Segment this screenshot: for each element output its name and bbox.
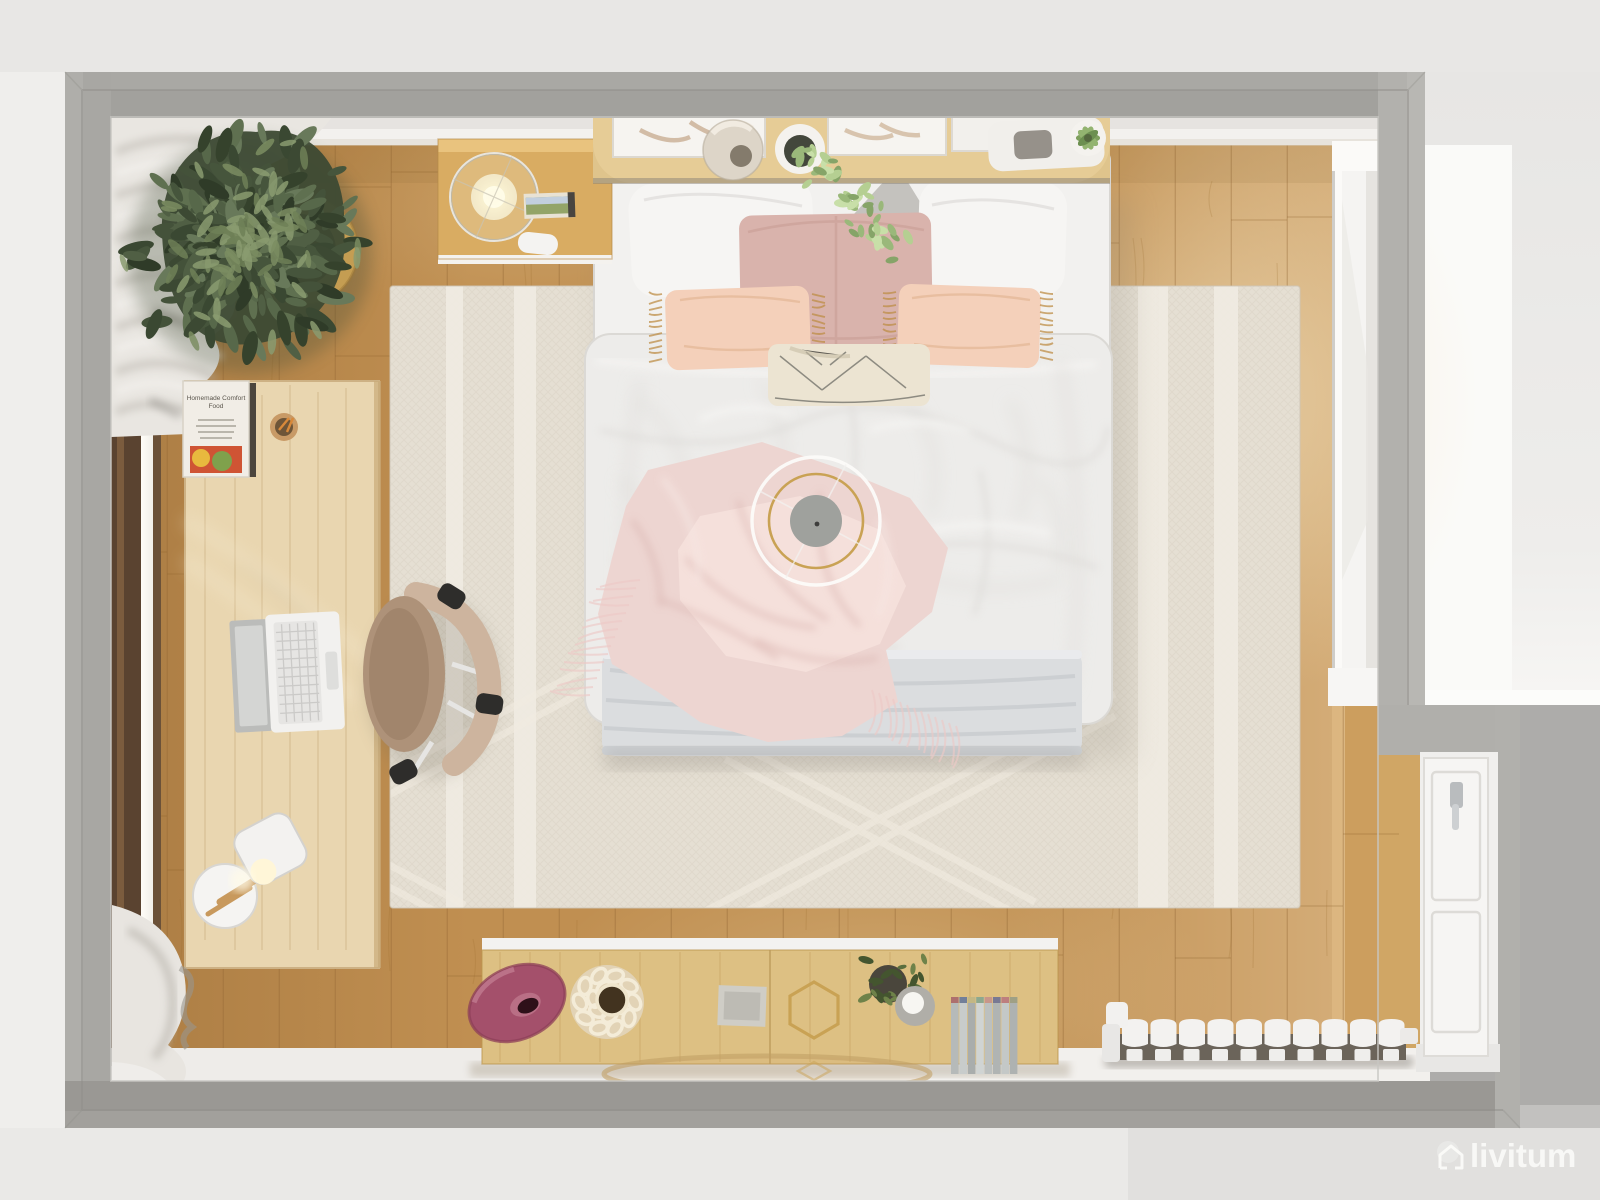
svg-text:livitum: livitum <box>1470 1137 1576 1174</box>
svg-text:Homemade Comfort: Homemade Comfort <box>187 395 246 402</box>
svg-text:Food: Food <box>209 403 224 410</box>
